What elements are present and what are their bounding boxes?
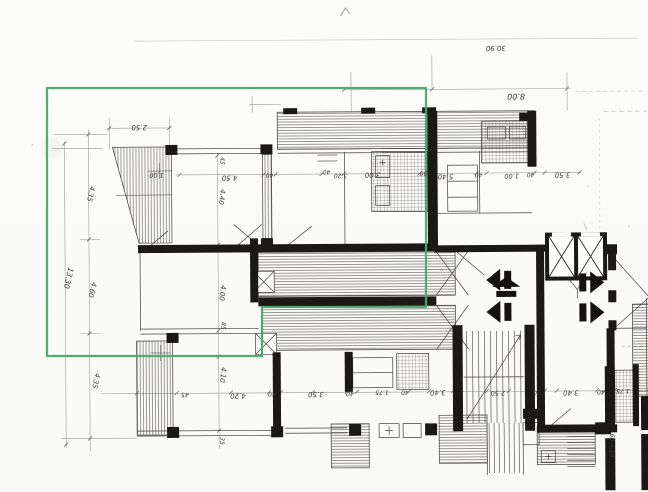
terrace-hatch-bottom-2 <box>439 415 487 463</box>
dimension-label: 4.40 <box>217 189 227 206</box>
dimension-label: 40 <box>401 388 409 395</box>
dimension-label: 3.40 <box>563 388 579 396</box>
dimension-label: 80 <box>420 169 428 176</box>
floor-plan-drawing: 30.908.002.501.00454.50404.40403.203.008… <box>0 0 648 492</box>
dimension-label: 3.50 <box>554 170 570 178</box>
dimension-label: 45 <box>181 391 189 398</box>
dimension-label: 4.35 <box>85 185 96 202</box>
staircase-lower-flight <box>487 423 523 475</box>
dimension-label: 1.00 <box>504 172 519 180</box>
door-arrow-icon <box>486 301 511 323</box>
dimension-label: 4.20 <box>230 391 246 399</box>
dimension-label: 1.00 <box>149 171 164 179</box>
dimension-label: 40 <box>597 388 605 395</box>
dimension-label: 3.50 <box>308 390 324 398</box>
dimension-label: 4.00 <box>217 285 227 302</box>
elevator-shaft <box>545 232 607 280</box>
dimension-label: 40 <box>527 171 535 178</box>
terrace-hatch-mid-lower <box>262 305 455 350</box>
dimension-label: 8.00 <box>507 92 525 101</box>
dimension-label: 3.40 <box>430 388 446 396</box>
staircase <box>464 331 525 423</box>
dimension-label: 3.00 <box>364 171 380 179</box>
dimension-label: 40 <box>323 168 331 175</box>
kitchen-tile-hatch <box>397 353 429 389</box>
dimension-label: 60 <box>608 433 616 442</box>
dimension-label: 30.90 <box>485 44 506 52</box>
dimension-label: 4.60 <box>86 281 97 298</box>
bath-tile-hatch-bottom-right <box>615 370 633 422</box>
dimension-label: 85 <box>219 322 227 331</box>
hatched-areas-layer <box>112 110 648 469</box>
dimension-label: 40 <box>346 390 354 397</box>
dimension-label: 40 <box>266 171 274 178</box>
dimension-label: 45 <box>218 157 226 166</box>
dimension-label: 4.10 <box>218 367 228 384</box>
dimension-label: 40 <box>475 171 483 178</box>
dimension-label: 3.20 <box>334 172 348 179</box>
dimension-label: 1.75 <box>616 387 630 394</box>
dimension-label: 4.50 <box>221 174 237 182</box>
bath-tile-hatch-center <box>371 151 427 211</box>
dimension-label: 1.75 <box>375 389 389 396</box>
dimension-label: 20 <box>533 389 541 396</box>
dimension-label: 2.50 <box>491 389 506 397</box>
floor-plan-scan: 30.908.002.501.00454.50404.40403.203.008… <box>0 0 648 492</box>
dimension-label: 13.30 <box>62 267 76 290</box>
dimension-label: 35 <box>218 437 226 446</box>
wall-glazing-hatch <box>262 154 272 238</box>
dimension-label: 5.40 <box>437 172 453 180</box>
dimension-label: 4.35 <box>90 372 101 389</box>
dimension-label: 40 <box>268 390 276 397</box>
door-arrow-icon <box>579 301 604 323</box>
dimension-label: 2.50 <box>131 123 147 131</box>
